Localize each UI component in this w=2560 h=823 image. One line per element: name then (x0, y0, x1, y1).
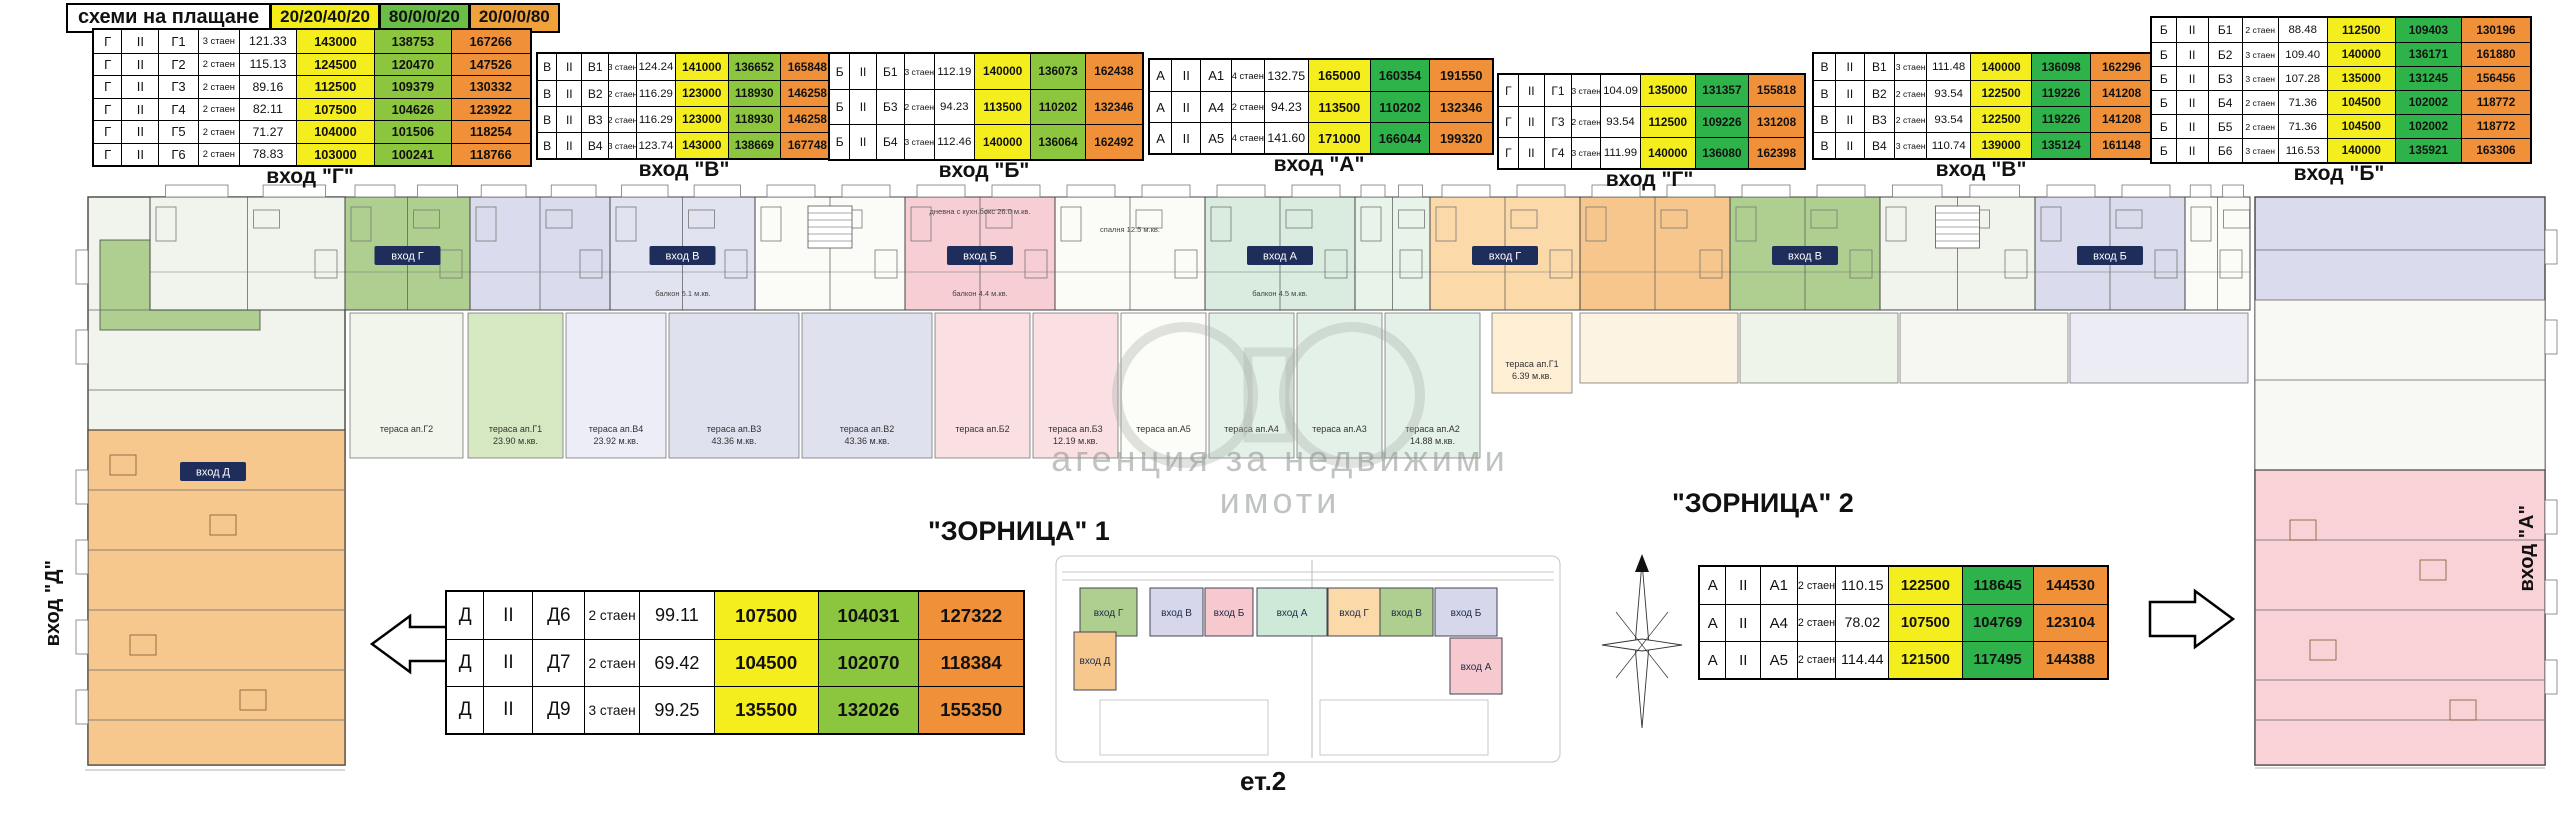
price-scheme2: 119226 (2032, 106, 2091, 132)
entrance-col: Г (1499, 137, 1519, 168)
floor-col: II (1172, 60, 1201, 91)
entrance-col: Г (94, 53, 122, 76)
svg-text:вход Б: вход Б (1214, 608, 1245, 619)
floor-col: II (122, 75, 159, 98)
building1-title: "ЗОРНИЦА" 1 (928, 516, 1110, 547)
floor-col: II (1726, 567, 1761, 604)
balcony (76, 470, 88, 504)
svg-text:вход Д: вход Д (196, 467, 231, 479)
balcony (1817, 185, 1865, 197)
price-scheme2: 102070 (819, 639, 920, 686)
price-scheme1: 141000 (676, 54, 729, 80)
table-row: БIIБ13 стаен112.19140000136073162438 (830, 54, 1142, 89)
area-col: 88.48 (2279, 18, 2328, 42)
table-row: АIIА42 стаен94.23113500110202132346 (1150, 91, 1492, 122)
price-table-b-right: БIIБ12 стаен88.48112500109403130196БIIБ2… (2150, 16, 2532, 164)
entrance-col: В (538, 54, 557, 80)
room-label: дневна с кухн.бокс 26.0 м.кв. (930, 207, 1031, 216)
area-col: 111.99 (1601, 137, 1641, 168)
balcony (1442, 185, 1490, 197)
price-scheme2: 136098 (2032, 54, 2091, 80)
balcony (2545, 320, 2557, 354)
apt-col: В4 (582, 132, 609, 158)
entrance-col: Б (830, 124, 850, 159)
type-col: 2 стаен (905, 89, 935, 124)
table-row: ВIIВ32 стаен116.29123000118930146258 (538, 106, 834, 132)
svg-text:43.36 м.кв.: 43.36 м.кв. (845, 436, 890, 446)
price-scheme2: 136064 (1031, 124, 1086, 159)
table-row: БIIБ42 стаен71.36104500102002118772 (2152, 90, 2530, 114)
entrance-col: В (1814, 132, 1836, 158)
price-scheme3: 155818 (1749, 75, 1804, 106)
balcony (1517, 185, 1565, 197)
svg-text:тераса ап.А5: тераса ап.А5 (1136, 424, 1190, 434)
apt-col: Г2 (159, 53, 198, 76)
apt-col: Г1 (159, 30, 198, 53)
apt-col: Б6 (2209, 138, 2243, 162)
svg-text:тераса ап.Г1: тераса ап.Г1 (489, 424, 542, 434)
apt-col: А5 (1201, 122, 1232, 153)
balcony (767, 185, 815, 197)
price-scheme1: 112500 (1641, 106, 1696, 137)
price-scheme1: 122500 (1971, 80, 2032, 106)
floor-col: II (1519, 137, 1545, 168)
svg-text:тераса ап.В3: тераса ап.В3 (707, 424, 761, 434)
table-row: БIIБ32 стаен94.23113500110202132346 (830, 89, 1142, 124)
room-label: балкон 4.4 м.кв. (952, 289, 1008, 298)
type-col: 3 стаен (1895, 132, 1927, 158)
area-col: 109.40 (2279, 42, 2328, 66)
price-scheme3: 132346 (1086, 89, 1142, 124)
svg-text:вход А: вход А (1263, 251, 1298, 263)
price-scheme2: 136171 (2396, 42, 2462, 66)
svg-text:вход Б: вход Б (2093, 251, 2127, 263)
type-col: 3 стаен (1572, 137, 1601, 168)
building2-title: "ЗОРНИЦА" 2 (1672, 488, 1854, 519)
type-col: 2 стаен (1798, 641, 1837, 678)
apt-col: В2 (1865, 80, 1895, 106)
entrance-col: А (1700, 604, 1726, 641)
apt-col: В2 (582, 80, 609, 106)
price-scheme2: 109403 (2396, 18, 2462, 42)
price-scheme2: 109379 (375, 75, 451, 98)
price-table-g-left: ГIIГ13 стаен121.33143000138753167266ГIIГ… (92, 28, 532, 167)
floor-col: II (122, 98, 159, 121)
area-col: 71.27 (240, 120, 297, 143)
entrance-label: вход "Б" (894, 159, 1074, 183)
table-row: БIIБ33 стаен107.28135000131245156456 (2152, 66, 2530, 90)
svg-text:вход Г: вход Г (1094, 608, 1124, 619)
price-scheme2: 166044 (1371, 122, 1431, 153)
area-col: 71.36 (2279, 90, 2328, 114)
price-scheme1: 143000 (676, 132, 729, 158)
right-wing-pink (2255, 470, 2545, 765)
price-scheme3: 131208 (1749, 106, 1804, 137)
floor-col: II (122, 143, 159, 166)
terrace (1900, 313, 2068, 383)
price-scheme3: 144388 (2034, 641, 2107, 678)
apt-col: Г3 (159, 75, 198, 98)
balcony (1217, 185, 1265, 197)
floor-col: II (122, 120, 159, 143)
area-col: 111.48 (1927, 54, 1971, 80)
price-scheme1: 140000 (1641, 137, 1696, 168)
floorplan-page: вход Двход Гвход Ввход Бвход Авход Гвход… (0, 0, 2560, 823)
entrance-col: Б (2152, 138, 2177, 162)
table-row: БIIБ12 стаен88.48112500109403130196 (2152, 18, 2530, 42)
type-col: 3 стаен (905, 54, 935, 89)
entrance-col: В (1814, 106, 1836, 132)
table-row: ГIIГ42 стаен82.11107500104626123922 (94, 98, 530, 121)
svg-text:вход В: вход В (1391, 608, 1422, 619)
area-col: 141.60 (1265, 122, 1309, 153)
type-col: 2 стаен (585, 639, 640, 686)
arrow-right (2150, 591, 2233, 647)
price-scheme1: 121500 (1889, 641, 1962, 678)
apt-col: В3 (1865, 106, 1895, 132)
entrance-col: Б (2152, 90, 2177, 114)
svg-text:вход Г: вход Г (1339, 608, 1369, 619)
floor-col: II (1726, 604, 1761, 641)
type-col: 2 стаен (1232, 91, 1264, 122)
floor-col: II (1836, 80, 1865, 106)
floor-col: II (2177, 138, 2209, 162)
price-scheme2: 131357 (1696, 75, 1749, 106)
entrance-col: В (538, 80, 557, 106)
type-col: 3 стаен (199, 30, 240, 53)
svg-text:тераса ап.А3: тераса ап.А3 (1312, 424, 1366, 434)
floor-col: II (2177, 18, 2209, 42)
apt-col: В3 (582, 106, 609, 132)
terrace (1492, 313, 1572, 393)
price-scheme2: 110202 (1371, 91, 1431, 122)
entrance-col: Г (94, 98, 122, 121)
entrance-col: Б (2152, 18, 2177, 42)
apt-col: Б1 (2209, 18, 2243, 42)
floor-col: II (557, 132, 582, 158)
terrace (1740, 313, 1898, 383)
svg-text:вход Г: вход Г (391, 251, 424, 263)
entrance-col: Д (447, 592, 484, 639)
price-scheme1: 135500 (715, 686, 819, 733)
floor-col: II (2177, 114, 2209, 138)
balcony (166, 185, 228, 197)
price-table-a-bottom: АIIА12 стаен110.15122500118645144530АIIА… (1698, 565, 2109, 680)
entrance-col: В (1814, 54, 1836, 80)
price-scheme2: 132026 (819, 686, 920, 733)
type-col: 2 стаен (199, 143, 240, 166)
floor-col: II (850, 124, 877, 159)
price-scheme2: 118930 (729, 80, 781, 106)
price-scheme3: 144530 (2034, 567, 2107, 604)
price-table-v-right: ВIIВ13 стаен111.48140000136098162296ВIIВ… (1812, 52, 2154, 160)
price-scheme3: 141208 (2091, 80, 2152, 106)
type-col: 3 стаен (1572, 75, 1601, 106)
balcony (2223, 185, 2244, 197)
apt-col: Б3 (2209, 66, 2243, 90)
price-scheme1: 107500 (1889, 604, 1962, 641)
price-scheme3: 162438 (1086, 54, 1142, 89)
floor-col: II (850, 89, 877, 124)
price-scheme2: 118645 (1963, 567, 2034, 604)
price-scheme2: 138669 (729, 132, 781, 158)
balcony (1292, 185, 1340, 197)
entrance-col: Б (2152, 42, 2177, 66)
table-row: ГIIГ13 стаен121.33143000138753167266 (94, 30, 530, 53)
apt-col: А5 (1761, 641, 1798, 678)
balcony (1142, 185, 1190, 197)
type-col: 2 стаен (199, 75, 240, 98)
entrance-col: Г (1499, 106, 1519, 137)
balcony (76, 250, 88, 284)
balcony (1892, 185, 1942, 197)
area-col: 112.19 (935, 54, 976, 89)
floor-col: II (557, 80, 582, 106)
area-col: 93.54 (1927, 80, 1971, 106)
table-row: ГIIГ62 стаен78.83103000100241118766 (94, 143, 530, 166)
price-scheme1: 135000 (1641, 75, 1696, 106)
price-scheme1: 140000 (1971, 54, 2032, 80)
type-col: 4 стаен (1232, 60, 1264, 91)
type-col: 2 стаен (609, 106, 637, 132)
price-scheme1: 104500 (2328, 114, 2396, 138)
area-col: 82.11 (240, 98, 297, 121)
price-scheme2: 102002 (2396, 90, 2462, 114)
entrance-label: вход "Г" (220, 165, 400, 189)
entrance-col: Б (830, 89, 850, 124)
terrace (1297, 313, 1382, 458)
area-col: 121.33 (240, 30, 297, 53)
table-row: ГIIГ22 стаен115.13124500120470147526 (94, 53, 530, 76)
area-col: 89.16 (240, 75, 297, 98)
type-col: 2 стаен (609, 80, 637, 106)
floor-col: II (1172, 122, 1201, 153)
table-row: БIIБ43 стаен112.46140000136064162492 (830, 124, 1142, 159)
svg-text:вход А: вход А (1277, 608, 1308, 619)
apt-col: В4 (1865, 132, 1895, 158)
floor-col: II (557, 54, 582, 80)
type-col: 2 стаен (1895, 80, 1927, 106)
table-row: ГIIГ32 стаен89.16112500109379130332 (94, 75, 530, 98)
arrow-left (372, 616, 455, 672)
table-row: ДIIД93 стаен99.25135500132026155350 (447, 686, 1023, 733)
area-col: 116.29 (637, 80, 675, 106)
price-scheme3: 161148 (2091, 132, 2152, 158)
apt-col: Б1 (877, 54, 905, 89)
terrace (935, 313, 1030, 458)
price-scheme3: 162492 (1086, 124, 1142, 159)
type-col: 4 стаен (1232, 122, 1264, 153)
entrance-col: Г (94, 143, 122, 166)
entrance-col: В (538, 132, 557, 158)
price-scheme2: 135921 (2396, 138, 2462, 162)
entrance-col: А (1150, 91, 1172, 122)
price-scheme3: 167266 (452, 30, 530, 53)
apt-col: А1 (1761, 567, 1798, 604)
floor-col: II (1172, 91, 1201, 122)
price-scheme2: 109226 (1696, 106, 1749, 137)
floor-col: II (1726, 641, 1761, 678)
parking (1100, 700, 1268, 755)
svg-text:вход В: вход В (666, 251, 700, 263)
area-col: 116.53 (2279, 138, 2328, 162)
price-scheme1: 140000 (2328, 42, 2396, 66)
price-scheme2: 138753 (375, 30, 451, 53)
price-scheme3: 165848 (781, 54, 834, 80)
balcony (76, 540, 88, 574)
price-scheme1: 139000 (1971, 132, 2032, 158)
apt-col: Б2 (2209, 42, 2243, 66)
price-scheme1: 112500 (297, 75, 375, 98)
type-col: 3 стаен (609, 132, 637, 158)
balcony (2545, 500, 2557, 534)
compass-rose (1602, 554, 1682, 728)
entrance-col: Г (94, 120, 122, 143)
balcony (76, 690, 88, 724)
price-scheme2: 104769 (1963, 604, 2034, 641)
area-col: 104.09 (1601, 75, 1641, 106)
floor-col: II (484, 686, 533, 733)
price-scheme3: 118772 (2462, 90, 2530, 114)
type-col: 2 стаен (199, 120, 240, 143)
price-scheme1: 143000 (297, 30, 375, 53)
area-col: 132.75 (1265, 60, 1309, 91)
type-col: 3 стаен (2243, 138, 2279, 162)
balcony (76, 620, 88, 654)
price-scheme3: 161880 (2462, 42, 2530, 66)
apt-col: Г4 (1545, 137, 1572, 168)
svg-text:6.39 м.кв.: 6.39 м.кв. (1512, 371, 1552, 381)
apt-col: Б4 (2209, 90, 2243, 114)
table-row: АIIА52 стаен114.44121500117495144388 (1700, 641, 2107, 678)
table-row: АIIА14 стаен132.75165000160354191550 (1150, 60, 1492, 91)
area-col: 69.42 (640, 639, 715, 686)
balcony (2545, 230, 2557, 264)
apt-col: Д9 (533, 686, 585, 733)
table-row: БIIБ52 стаен71.36104500102002118772 (2152, 114, 2530, 138)
entrance-col: А (1150, 122, 1172, 153)
entrance-label: вход "Г" (1560, 168, 1740, 192)
price-scheme3: 141208 (2091, 106, 2152, 132)
price-scheme1: 124500 (297, 53, 375, 76)
type-col: 3 стаен (2243, 66, 2279, 90)
price-scheme3: 155350 (919, 686, 1023, 733)
area-col: 116.29 (637, 106, 675, 132)
price-scheme2: 136652 (729, 54, 781, 80)
floor-col: II (2177, 66, 2209, 90)
balcony (622, 185, 668, 197)
price-table-a-top: АIIА14 стаен132.75165000160354191550АIIА… (1148, 58, 1494, 155)
room-label: балкон 4.5 м.кв. (1252, 289, 1308, 298)
floor-col: II (850, 54, 877, 89)
apt-col: Д6 (533, 592, 585, 639)
price-scheme1: 122500 (1971, 106, 2032, 132)
floor-col: II (557, 106, 582, 132)
table-row: ВIIВ32 стаен93.54122500119226141208 (1814, 106, 2152, 132)
price-scheme3: 146258 (781, 80, 834, 106)
floor-col: II (1519, 75, 1545, 106)
price-scheme3: 146258 (781, 106, 834, 132)
price-scheme1: 140000 (975, 124, 1031, 159)
svg-text:вход Б: вход Б (963, 251, 997, 263)
entrance-label: вход "В" (594, 158, 774, 182)
price-scheme2: 100241 (375, 143, 451, 166)
price-scheme1: 104500 (715, 639, 819, 686)
table-row: ВIIВ22 стаен93.54122500119226141208 (1814, 80, 2152, 106)
price-scheme3: 191550 (1430, 60, 1492, 91)
svg-text:вход Д: вход Д (1080, 656, 1111, 667)
entrance-col: В (1814, 80, 1836, 106)
price-scheme3: 127322 (919, 592, 1023, 639)
area-col: 94.23 (935, 89, 976, 124)
terrace (350, 313, 463, 458)
price-scheme1: 140000 (2328, 138, 2396, 162)
svg-text:вход А: вход А (1461, 662, 1492, 673)
table-row: БIIБ63 стаен116.53140000135921163306 (2152, 138, 2530, 162)
price-scheme3: 118766 (452, 143, 530, 166)
balcony (1067, 185, 1115, 197)
table-row: АIIА42 стаен78.02107500104769123104 (1700, 604, 2107, 641)
price-scheme1: 107500 (715, 592, 819, 639)
entrance-col: Г (1499, 75, 1519, 106)
area-col: 115.13 (240, 53, 297, 76)
table-row: АIIА12 стаен110.15122500118645144530 (1700, 567, 2107, 604)
price-table-v-left: ВIIВ13 стаен124.24141000136652165848ВIIВ… (536, 52, 836, 160)
balcony (2122, 185, 2170, 197)
type-col: 3 стаен (905, 124, 935, 159)
price-scheme2: 102002 (2396, 114, 2462, 138)
price-scheme2: 120470 (375, 53, 451, 76)
balcony (418, 185, 458, 197)
apt-col: В1 (582, 54, 609, 80)
svg-text:23.90 м.кв.: 23.90 м.кв. (493, 436, 538, 446)
balcony (76, 330, 88, 364)
price-table-d-bottom: ДIIД62 стаен99.11107500104031127322ДIIД7… (445, 590, 1025, 735)
floor-col: II (1836, 106, 1865, 132)
floor-col: II (122, 53, 159, 76)
type-col: 2 стаен (2243, 114, 2279, 138)
svg-text:тераса ап.Г2: тераса ап.Г2 (380, 424, 433, 434)
parking (1320, 700, 1488, 755)
entrance-label: вход "А" (1229, 153, 1409, 177)
price-scheme3: 132346 (1430, 91, 1492, 122)
price-scheme3: 199320 (1430, 122, 1492, 153)
svg-text:тераса ап.В4: тераса ап.В4 (589, 424, 643, 434)
price-scheme2: 160354 (1371, 60, 1431, 91)
price-scheme3: 163306 (2462, 138, 2530, 162)
apt-col: Б5 (2209, 114, 2243, 138)
price-scheme2: 104626 (375, 98, 451, 121)
price-scheme2: 135124 (2032, 132, 2091, 158)
floor-col: II (1836, 132, 1865, 158)
balcony (842, 185, 890, 197)
apt-col: Д7 (533, 639, 585, 686)
area-col: 124.24 (637, 54, 675, 80)
type-col: 2 стаен (199, 53, 240, 76)
price-scheme1: 113500 (975, 89, 1031, 124)
apt-col: А1 (1201, 60, 1232, 91)
price-scheme3: 162296 (2091, 54, 2152, 80)
entrance-col: Д (447, 639, 484, 686)
floor-col: II (484, 592, 533, 639)
price-scheme1: 123000 (676, 106, 729, 132)
area-col: 112.46 (935, 124, 976, 159)
wing-right-label: вход "А" (2516, 505, 2539, 592)
price-scheme1: 104000 (297, 120, 375, 143)
table-row: ВIIВ22 стаен116.29123000118930146258 (538, 80, 834, 106)
price-scheme1: 135000 (2328, 66, 2396, 90)
type-col: 2 стаен (1572, 106, 1601, 137)
